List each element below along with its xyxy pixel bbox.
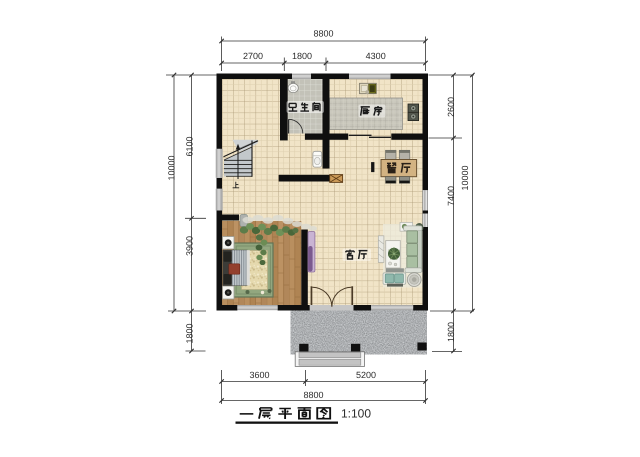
svg-text:10000: 10000 [167,155,177,180]
svg-text:1:100: 1:100 [341,407,371,421]
svg-text:7400: 7400 [446,186,456,206]
svg-text:2700: 2700 [243,51,263,61]
svg-text:3900: 3900 [185,236,195,256]
svg-text:6100: 6100 [185,136,195,156]
svg-text:5200: 5200 [356,370,376,380]
svg-text:3600: 3600 [249,370,269,380]
svg-text:1800: 1800 [292,51,312,61]
svg-text:1800: 1800 [185,323,195,343]
svg-text:10000: 10000 [460,165,470,190]
svg-text:8800: 8800 [313,29,333,39]
svg-text:2600: 2600 [446,97,456,117]
svg-text:8800: 8800 [303,390,323,400]
svg-text:1800: 1800 [446,322,456,342]
svg-text:4300: 4300 [366,51,386,61]
